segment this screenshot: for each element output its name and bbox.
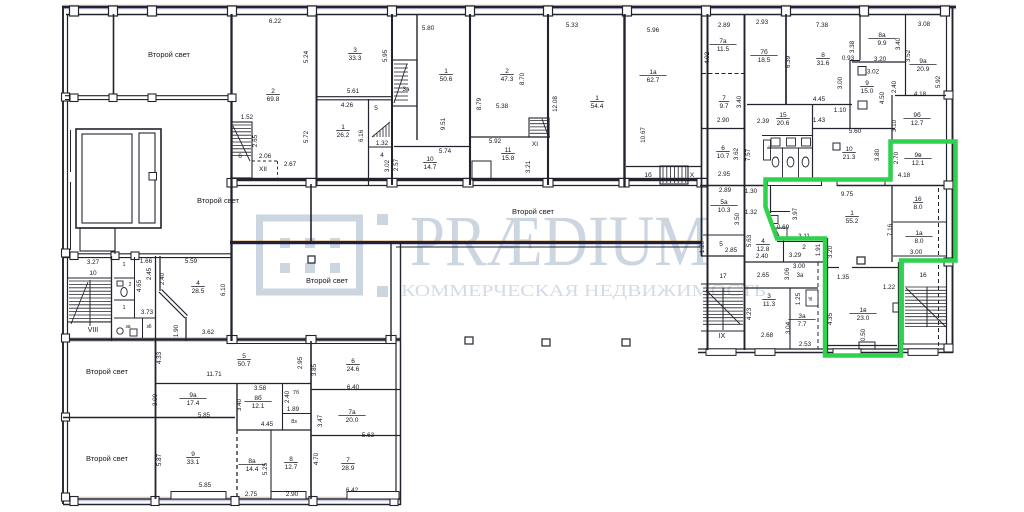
svg-text:12.08: 12.08 (552, 96, 559, 112)
svg-text:2.90: 2.90 (286, 491, 299, 498)
svg-text:1: 1 (341, 124, 345, 131)
svg-text:12.1: 12.1 (252, 403, 265, 410)
svg-text:Второй свет: Второй свет (148, 50, 190, 59)
svg-text:3.29: 3.29 (789, 252, 802, 259)
svg-text:3.80: 3.80 (874, 148, 881, 161)
svg-text:4: 4 (380, 152, 384, 159)
svg-text:1: 1 (595, 95, 599, 102)
svg-text:4.65: 4.65 (136, 279, 143, 292)
svg-text:26.2: 26.2 (337, 132, 350, 139)
svg-text:28.9: 28.9 (342, 465, 355, 472)
svg-text:8з: 8з (291, 419, 297, 425)
svg-text:4.23: 4.23 (746, 307, 753, 320)
svg-text:69.8: 69.8 (267, 96, 280, 103)
svg-text:33.1: 33.1 (187, 459, 200, 466)
svg-text:11.5: 11.5 (717, 46, 730, 53)
svg-text:3.40: 3.40 (736, 95, 743, 108)
svg-text:3.62: 3.62 (202, 329, 215, 336)
svg-text:1.10: 1.10 (834, 107, 847, 114)
svg-text:2.57: 2.57 (393, 158, 400, 171)
svg-text:11.71: 11.71 (206, 371, 222, 378)
svg-text:4.33: 4.33 (156, 351, 163, 364)
svg-text:5.63: 5.63 (362, 432, 375, 439)
svg-text:5: 5 (719, 241, 723, 248)
svg-text:1.52: 1.52 (241, 114, 254, 121)
svg-text:7: 7 (346, 457, 350, 464)
svg-text:Второй свет: Второй свет (86, 454, 128, 463)
svg-text:5: 5 (242, 353, 246, 360)
svg-text:12.7: 12.7 (911, 120, 924, 127)
svg-text:62.7: 62.7 (647, 77, 660, 84)
svg-text:5.95: 5.95 (382, 49, 389, 62)
svg-text:21.3: 21.3 (843, 154, 856, 161)
svg-text:3.58: 3.58 (254, 385, 267, 392)
svg-text:1.91: 1.91 (815, 243, 822, 256)
svg-text:3.00: 3.00 (152, 393, 159, 406)
svg-text:1а: 1а (915, 230, 923, 237)
svg-text:6.39: 6.39 (785, 55, 792, 68)
svg-text:1.25: 1.25 (795, 292, 802, 305)
svg-text:5: 5 (374, 105, 378, 112)
svg-text:Второй свет: Второй свет (197, 196, 239, 205)
svg-text:1.35: 1.35 (837, 274, 850, 281)
svg-text:2: 2 (129, 282, 132, 288)
svg-text:3а: 3а (797, 273, 804, 279)
svg-text:14.7: 14.7 (424, 164, 437, 171)
svg-text:3.00: 3.00 (910, 249, 923, 256)
svg-text:4.50: 4.50 (879, 91, 886, 104)
svg-text:2.93: 2.93 (756, 19, 769, 26)
svg-text:7.57: 7.57 (745, 148, 752, 161)
svg-text:28.5: 28.5 (192, 288, 205, 295)
svg-text:8а: 8а (878, 32, 886, 39)
svg-text:2.95: 2.95 (297, 356, 304, 369)
svg-text:5.24: 5.24 (303, 50, 310, 63)
svg-text:2.90: 2.90 (717, 117, 730, 124)
svg-text:10: 10 (426, 156, 434, 163)
svg-text:8б: 8б (254, 394, 262, 402)
svg-text:6: 6 (721, 145, 725, 152)
svg-text:9.7: 9.7 (719, 103, 728, 110)
svg-text:3.47: 3.47 (317, 414, 324, 427)
svg-text:8: 8 (289, 456, 293, 463)
svg-text:2.40: 2.40 (284, 390, 291, 403)
svg-text:2.95: 2.95 (718, 171, 731, 178)
svg-text:1: 1 (122, 262, 125, 268)
svg-text:2.65: 2.65 (252, 134, 259, 147)
svg-text:6.16: 6.16 (358, 129, 365, 142)
svg-text:X: X (690, 172, 695, 179)
svg-text:3.08: 3.08 (918, 21, 931, 28)
svg-text:8: 8 (821, 52, 825, 59)
svg-text:2.89: 2.89 (718, 22, 731, 29)
svg-text:50.7: 50.7 (238, 361, 251, 368)
svg-text:7а: 7а (719, 38, 727, 45)
svg-text:3.40: 3.40 (895, 37, 902, 50)
svg-text:6.42: 6.42 (346, 487, 359, 494)
svg-text:9: 9 (865, 80, 869, 87)
svg-text:12.7: 12.7 (285, 464, 298, 471)
svg-text:1.43: 1.43 (813, 117, 826, 124)
svg-text:Второй свет: Второй свет (306, 276, 348, 285)
svg-text:16: 16 (919, 272, 927, 279)
svg-text:8а: 8а (248, 458, 256, 465)
svg-text:9а: 9а (919, 58, 927, 65)
svg-text:5.61: 5.61 (347, 88, 360, 95)
svg-text:5.85: 5.85 (199, 482, 212, 489)
svg-text:2.68: 2.68 (761, 332, 774, 339)
svg-text:10.3: 10.3 (718, 207, 731, 214)
svg-text:6.22: 6.22 (269, 18, 282, 25)
svg-text:5.92: 5.92 (935, 75, 942, 88)
svg-text:4: 4 (761, 238, 765, 245)
svg-text:0.50: 0.50 (860, 328, 867, 341)
svg-text:2.45: 2.45 (146, 267, 153, 280)
svg-text:54.4: 54.4 (591, 103, 604, 110)
svg-text:2.53: 2.53 (799, 341, 812, 348)
svg-text:9в: 9в (914, 152, 922, 159)
svg-text:VIII: VIII (88, 327, 99, 334)
svg-text:7: 7 (722, 95, 726, 102)
svg-text:3.02: 3.02 (384, 159, 391, 172)
svg-text:7.7: 7.7 (797, 321, 806, 328)
svg-text:6: 6 (351, 358, 355, 365)
svg-text:10: 10 (89, 270, 97, 277)
svg-text:9: 9 (191, 451, 195, 458)
svg-text:зб: зб (808, 296, 813, 301)
svg-text:15.8: 15.8 (502, 155, 515, 162)
svg-text:3.85: 3.85 (311, 363, 318, 376)
svg-text:17.4: 17.4 (187, 400, 200, 407)
svg-text:1а: 1а (649, 69, 657, 76)
svg-text:7б: 7б (760, 48, 768, 56)
svg-text:5.85: 5.85 (198, 412, 211, 419)
svg-text:9б: 9б (913, 111, 921, 119)
svg-text:4.45: 4.45 (813, 96, 826, 103)
svg-text:3.10: 3.10 (891, 119, 898, 132)
svg-text:1.90: 1.90 (173, 324, 180, 337)
svg-text:31.6: 31.6 (817, 60, 830, 67)
svg-text:2.06: 2.06 (259, 153, 272, 160)
svg-text:17: 17 (719, 273, 727, 280)
svg-text:Второй свет: Второй свет (86, 367, 128, 376)
svg-text:3.40: 3.40 (236, 398, 243, 411)
svg-text:2.65: 2.65 (757, 272, 770, 279)
svg-text:4.18: 4.18 (898, 172, 911, 179)
svg-text:12.1: 12.1 (912, 160, 925, 167)
svg-text:7.16: 7.16 (887, 223, 894, 236)
svg-text:6.40: 6.40 (347, 384, 360, 391)
svg-text:2.40: 2.40 (159, 272, 166, 285)
svg-text:2: 2 (505, 68, 509, 75)
svg-text:47.3: 47.3 (501, 76, 514, 83)
svg-text:2.85: 2.85 (725, 247, 738, 254)
svg-text:3.00: 3.00 (793, 263, 806, 270)
svg-text:4.45: 4.45 (261, 421, 274, 428)
svg-text:20.6: 20.6 (777, 120, 790, 127)
svg-text:5.92: 5.92 (489, 138, 502, 145)
svg-text:1.89: 1.89 (287, 406, 300, 413)
svg-text:11: 11 (505, 147, 512, 154)
svg-text:1.20: 1.20 (699, 240, 706, 253)
svg-text:5.80: 5.80 (422, 25, 435, 32)
svg-text:1б: 1б (644, 171, 652, 179)
svg-text:0.69: 0.69 (777, 224, 790, 231)
svg-text:20.0: 20.0 (346, 417, 359, 424)
svg-text:2.67: 2.67 (284, 161, 297, 168)
svg-text:IX: IX (719, 333, 726, 340)
svg-text:1.30: 1.30 (745, 188, 758, 195)
svg-text:3.06: 3.06 (784, 267, 791, 280)
svg-text:2.40: 2.40 (891, 80, 898, 93)
svg-text:24.6: 24.6 (347, 366, 360, 373)
svg-text:2.75: 2.75 (245, 491, 258, 498)
svg-text:XI: XI (532, 141, 538, 148)
svg-text:10: 10 (845, 146, 853, 153)
svg-text:1.32: 1.32 (745, 209, 758, 216)
svg-text:4.02: 4.02 (704, 51, 711, 64)
svg-text:3: 3 (353, 47, 357, 54)
svg-text:5а: 5а (720, 199, 728, 206)
svg-text:XII: XII (259, 166, 267, 173)
svg-text:3.21: 3.21 (525, 160, 532, 173)
svg-text:10.7: 10.7 (717, 153, 730, 160)
svg-text:8.0: 8.0 (913, 204, 922, 211)
svg-text:3.97: 3.97 (792, 207, 799, 220)
svg-text:5.87: 5.87 (156, 453, 163, 466)
svg-text:0.93: 0.93 (842, 55, 855, 62)
svg-text:3а: 3а (403, 87, 410, 93)
svg-text:7б: 7б (293, 390, 299, 396)
svg-text:9.51: 9.51 (440, 117, 447, 130)
svg-text:2.70: 2.70 (893, 151, 900, 164)
svg-text:14.4: 14.4 (246, 466, 259, 473)
svg-text:15.0: 15.0 (861, 88, 874, 95)
svg-text:6: 6 (238, 153, 242, 160)
svg-text:9.75: 9.75 (841, 191, 854, 198)
svg-text:3.27: 3.27 (87, 259, 100, 266)
svg-text:3.73: 3.73 (141, 309, 154, 316)
svg-text:3.20: 3.20 (874, 56, 887, 63)
svg-text:2.39: 2.39 (757, 118, 770, 125)
svg-text:3.04: 3.04 (785, 321, 792, 334)
svg-text:2: 2 (271, 88, 275, 95)
svg-text:3.50: 3.50 (734, 212, 741, 225)
svg-text:5.38: 5.38 (496, 103, 509, 110)
svg-text:2.89: 2.89 (719, 187, 732, 194)
svg-text:4.26: 4.26 (341, 102, 354, 109)
svg-text:7.38: 7.38 (816, 22, 829, 29)
svg-text:3.00: 3.00 (837, 76, 844, 89)
svg-text:8.79: 8.79 (476, 97, 483, 110)
svg-text:16: 16 (914, 196, 922, 203)
svg-text:50.6: 50.6 (440, 76, 453, 83)
svg-text:5.96: 5.96 (647, 27, 660, 34)
svg-text:5.74: 5.74 (439, 148, 452, 155)
svg-text:3: 3 (767, 293, 771, 300)
svg-text:6.10: 6.10 (220, 283, 227, 296)
svg-text:8.0: 8.0 (914, 238, 923, 245)
svg-text:9.9: 9.9 (877, 40, 886, 47)
svg-text:8.70: 8.70 (519, 72, 526, 85)
svg-text:1: 1 (122, 305, 125, 311)
svg-text:3.52: 3.52 (905, 49, 912, 62)
svg-text:2.40: 2.40 (756, 253, 769, 260)
svg-text:2: 2 (802, 244, 806, 251)
svg-text:23.0: 23.0 (857, 315, 870, 322)
svg-text:Второй свет: Второй свет (512, 207, 554, 216)
svg-text:1.66: 1.66 (140, 258, 153, 265)
svg-text:5.59: 5.59 (185, 258, 198, 265)
svg-text:3а: 3а (798, 313, 806, 320)
svg-text:5.63: 5.63 (746, 234, 753, 247)
svg-text:33.3: 33.3 (349, 55, 362, 62)
svg-text:1: 1 (444, 68, 448, 75)
svg-text:10.67: 10.67 (640, 127, 647, 143)
svg-text:1в: 1в (859, 307, 867, 314)
svg-text:18.5: 18.5 (758, 57, 771, 64)
svg-text:3.20: 3.20 (827, 245, 834, 258)
svg-text:3.62: 3.62 (733, 147, 740, 160)
svg-text:1.22: 1.22 (883, 284, 896, 291)
svg-text:15: 15 (779, 112, 787, 119)
svg-text:4.35: 4.35 (827, 312, 834, 325)
svg-text:4.18: 4.18 (914, 91, 927, 98)
svg-text:1: 1 (850, 210, 854, 217)
svg-text:9а: 9а (189, 392, 197, 399)
svg-text:55.2: 55.2 (846, 218, 859, 225)
svg-text:20.9: 20.9 (917, 66, 930, 73)
svg-text:5.25: 5.25 (262, 462, 269, 475)
svg-text:12.8: 12.8 (757, 246, 770, 253)
svg-text:5.33: 5.33 (566, 22, 579, 29)
svg-text:3.38: 3.38 (849, 40, 856, 53)
svg-text:5.60: 5.60 (849, 128, 862, 135)
svg-text:3.02: 3.02 (867, 69, 880, 76)
svg-text:зб: зб (146, 324, 151, 330)
svg-text:11.3: 11.3 (763, 301, 776, 308)
svg-text:4: 4 (196, 280, 200, 287)
svg-text:4.70: 4.70 (313, 452, 320, 465)
svg-text:5.72: 5.72 (303, 130, 310, 143)
svg-text:1.32: 1.32 (376, 140, 389, 147)
svg-text:7а: 7а (348, 409, 356, 416)
